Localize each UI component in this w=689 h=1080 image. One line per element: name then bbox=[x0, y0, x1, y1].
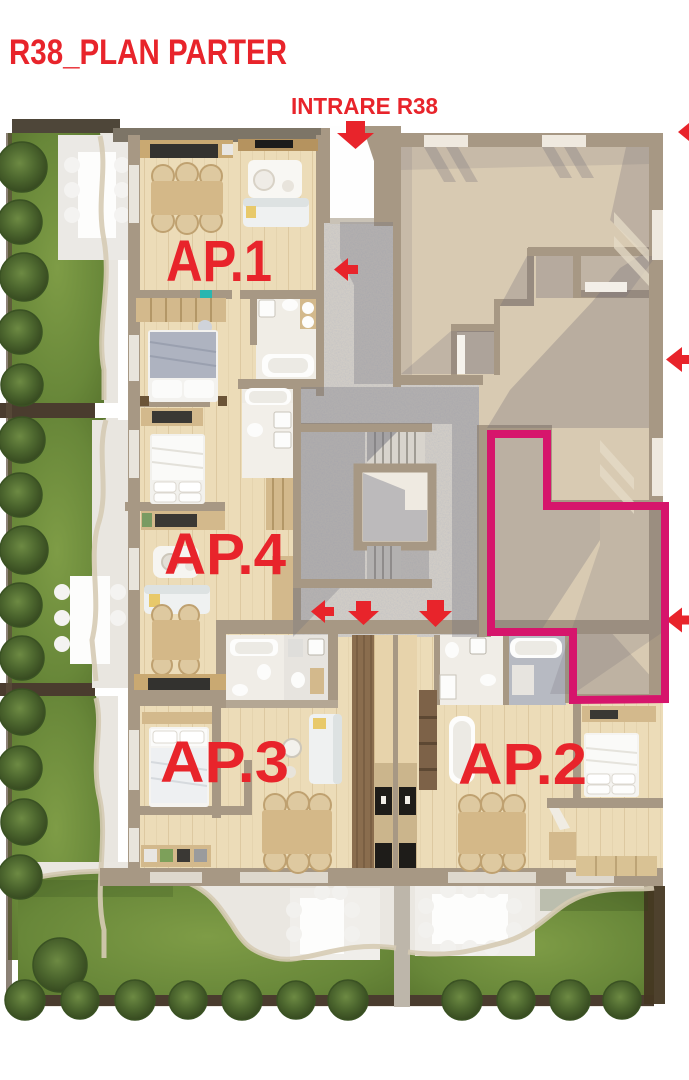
svg-text:AP.3: AP.3 bbox=[160, 730, 289, 795]
svg-text:AP.2: AP.2 bbox=[458, 732, 587, 797]
svg-text:AP.1: AP.1 bbox=[166, 229, 272, 294]
svg-text:R38_PLAN PARTER: R38_PLAN PARTER bbox=[9, 33, 287, 72]
svg-text:INTRARE R38: INTRARE R38 bbox=[291, 93, 438, 119]
svg-text:AP.4: AP.4 bbox=[164, 522, 286, 587]
